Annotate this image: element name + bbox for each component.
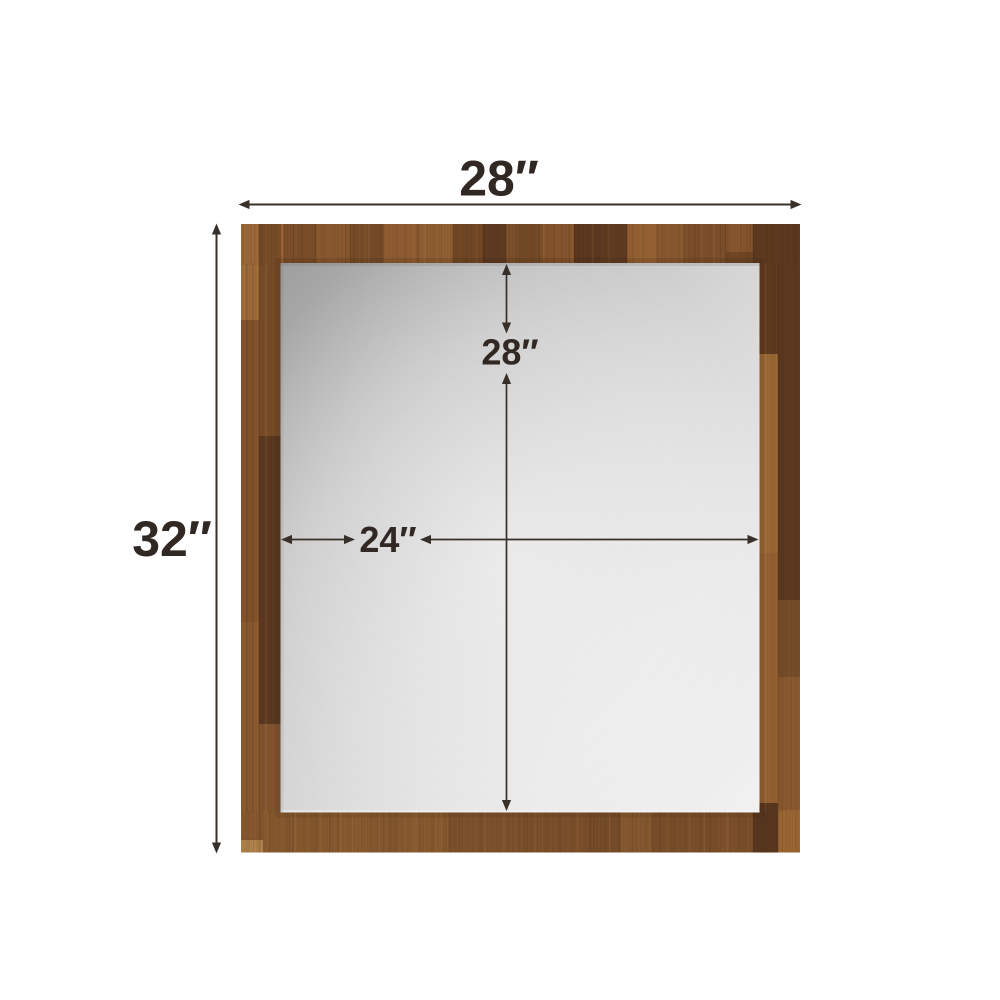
svg-text:28″: 28″ xyxy=(459,151,539,207)
svg-text:32″: 32″ xyxy=(132,511,212,567)
svg-text:28″: 28″ xyxy=(481,332,538,373)
svg-text:24″: 24″ xyxy=(359,519,416,560)
